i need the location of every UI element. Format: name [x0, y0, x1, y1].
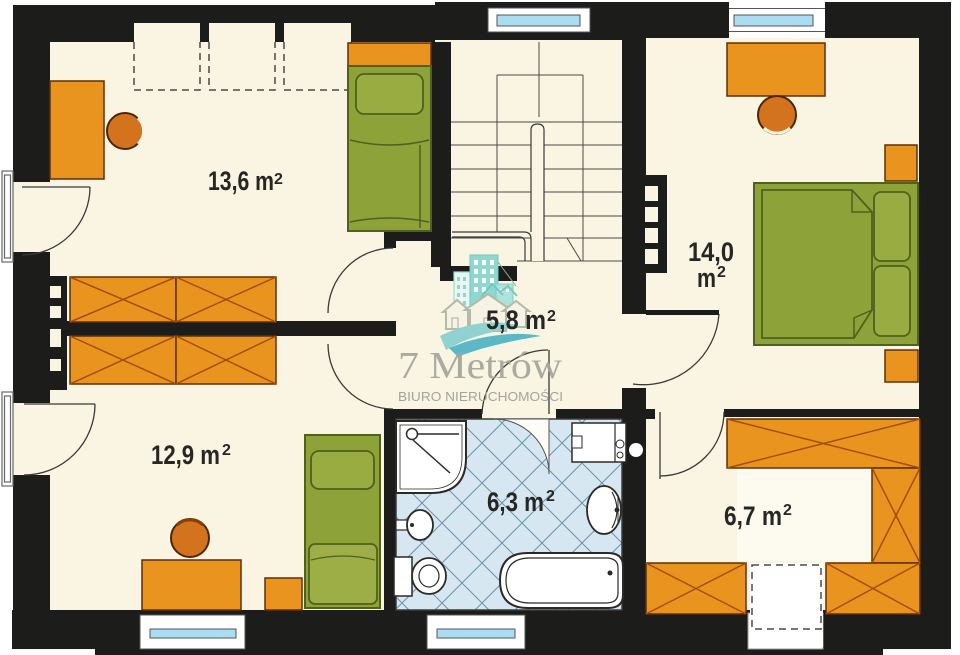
svg-text:5,8 m: 5,8 m	[486, 305, 546, 335]
svg-text:6,7 m: 6,7 m	[724, 501, 782, 531]
svg-text:2: 2	[547, 308, 556, 325]
svg-text:12,9 m: 12,9 m	[151, 440, 220, 470]
svg-text:2: 2	[274, 171, 283, 188]
svg-text:BIURO NIERUCHOMOŚCI: BIURO NIERUCHOMOŚCI	[398, 389, 563, 404]
svg-text:2: 2	[222, 442, 231, 459]
svg-text:2: 2	[546, 488, 555, 505]
svg-text:13,6 m: 13,6 m	[208, 166, 274, 196]
svg-text:7 Metrów: 7 Metrów	[398, 345, 563, 387]
svg-text:m: m	[697, 263, 716, 293]
svg-text:2: 2	[717, 264, 726, 281]
svg-text:6,3 m: 6,3 m	[487, 487, 544, 517]
svg-text:2: 2	[783, 502, 792, 519]
